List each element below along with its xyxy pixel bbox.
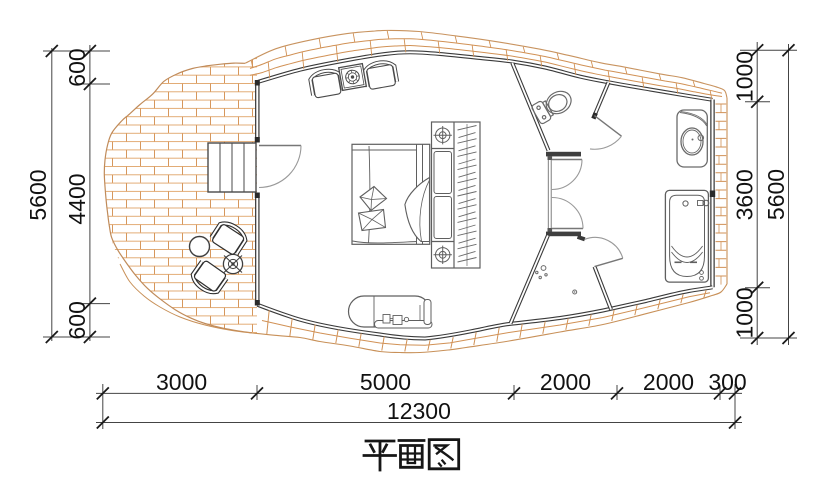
svg-text:3600: 3600: [732, 169, 758, 220]
svg-text:4400: 4400: [64, 173, 90, 224]
svg-text:1000: 1000: [732, 287, 758, 338]
svg-text:1000: 1000: [732, 51, 758, 102]
svg-text:5600: 5600: [25, 169, 51, 220]
svg-text:3000: 3000: [156, 369, 207, 395]
svg-text:2000: 2000: [643, 369, 694, 395]
svg-text:2000: 2000: [540, 369, 591, 395]
svg-text:600: 600: [64, 48, 90, 86]
svg-text:12300: 12300: [387, 398, 451, 424]
svg-text:5600: 5600: [763, 169, 789, 220]
svg-text:5000: 5000: [360, 369, 411, 395]
svg-text:300: 300: [708, 369, 746, 395]
svg-text:600: 600: [64, 301, 90, 339]
